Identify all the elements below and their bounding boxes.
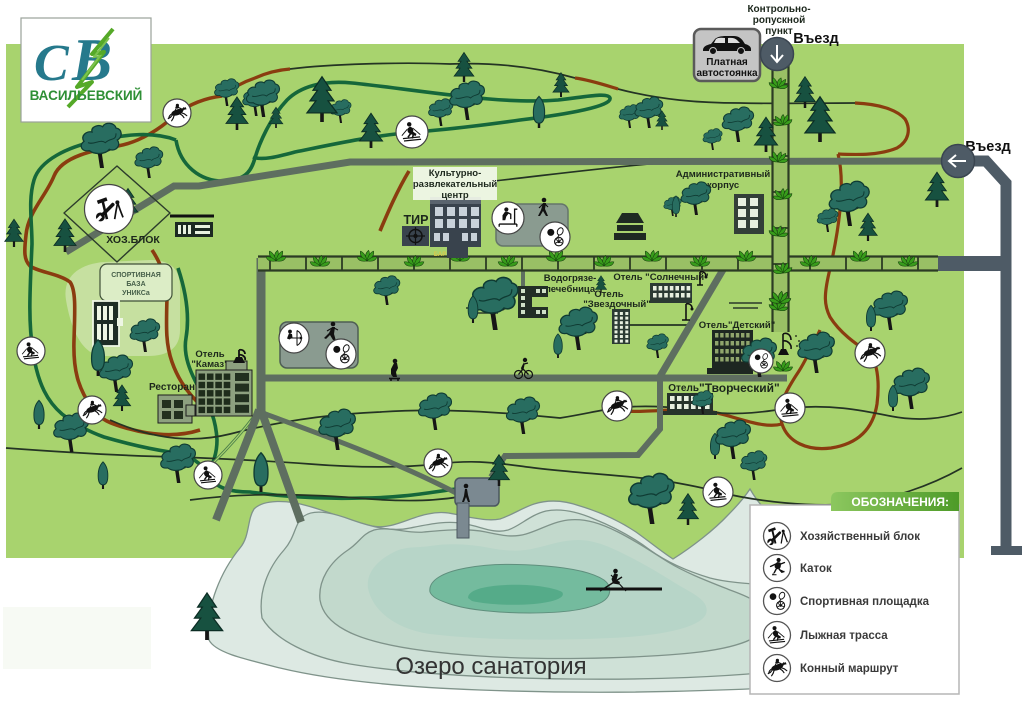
svg-text:Озеро санатория: Озеро санатория <box>395 653 586 680</box>
svg-text:"Звездочный": "Звездочный" <box>583 299 650 310</box>
svg-text:Каток: Каток <box>800 563 832 575</box>
svg-text:Платная: Платная <box>706 57 748 68</box>
svg-text:Хозяйственный блок: Хозяйственный блок <box>800 531 920 543</box>
svg-text:Ресторан: Ресторан <box>149 382 195 393</box>
svg-text:БАЗА: БАЗА <box>126 281 145 288</box>
svg-text:Спортивная площадка: Спортивная площадка <box>800 596 930 608</box>
svg-text:корпус: корпус <box>707 180 739 191</box>
svg-text:ропускной: ропускной <box>753 15 805 26</box>
svg-text:"Камаз": "Камаз" <box>191 359 228 370</box>
svg-text:ХОЗ.БЛОК: ХОЗ.БЛОК <box>106 234 160 246</box>
svg-text:ОБОЗНАЧЕНИЯ:: ОБОЗНАЧЕНИЯ: <box>851 495 949 509</box>
svg-text:Отель: Отель <box>668 383 699 394</box>
svg-text:Въезд: Въезд <box>793 31 839 47</box>
svg-text:Водогрязе-: Водогрязе- <box>544 273 597 284</box>
svg-text:БАР: БАР <box>434 252 446 258</box>
svg-text:автостоянка: автостоянка <box>696 68 758 79</box>
svg-text:С: С <box>34 35 70 92</box>
svg-text:лечебница: лечебница <box>545 284 596 295</box>
svg-text:Административный: Административный <box>676 169 771 180</box>
svg-text:ТИР: ТИР <box>404 213 429 227</box>
svg-text:Контрольно-: Контрольно- <box>747 4 810 15</box>
svg-text:ВАСИЛЬЕВСКИЙ: ВАСИЛЬЕВСКИЙ <box>30 88 143 103</box>
svg-text:Отель"Детский": Отель"Детский" <box>699 320 776 331</box>
svg-text:Конный маршрут: Конный маршрут <box>800 663 899 675</box>
svg-text:центр: центр <box>441 190 469 201</box>
svg-text:СПОРТИВНАЯ: СПОРТИВНАЯ <box>111 272 161 279</box>
svg-text:УНИКСа: УНИКСа <box>122 290 150 297</box>
svg-text:Лыжная трасса: Лыжная трасса <box>800 630 888 642</box>
svg-text:развлекательный: развлекательный <box>413 179 498 190</box>
svg-text:Отель "Солнечный": Отель "Солнечный" <box>613 272 708 283</box>
svg-text:пункт: пункт <box>765 26 793 37</box>
svg-text:"Творческий": "Творческий" <box>699 381 780 395</box>
svg-text:Культурно-: Культурно- <box>429 168 482 179</box>
